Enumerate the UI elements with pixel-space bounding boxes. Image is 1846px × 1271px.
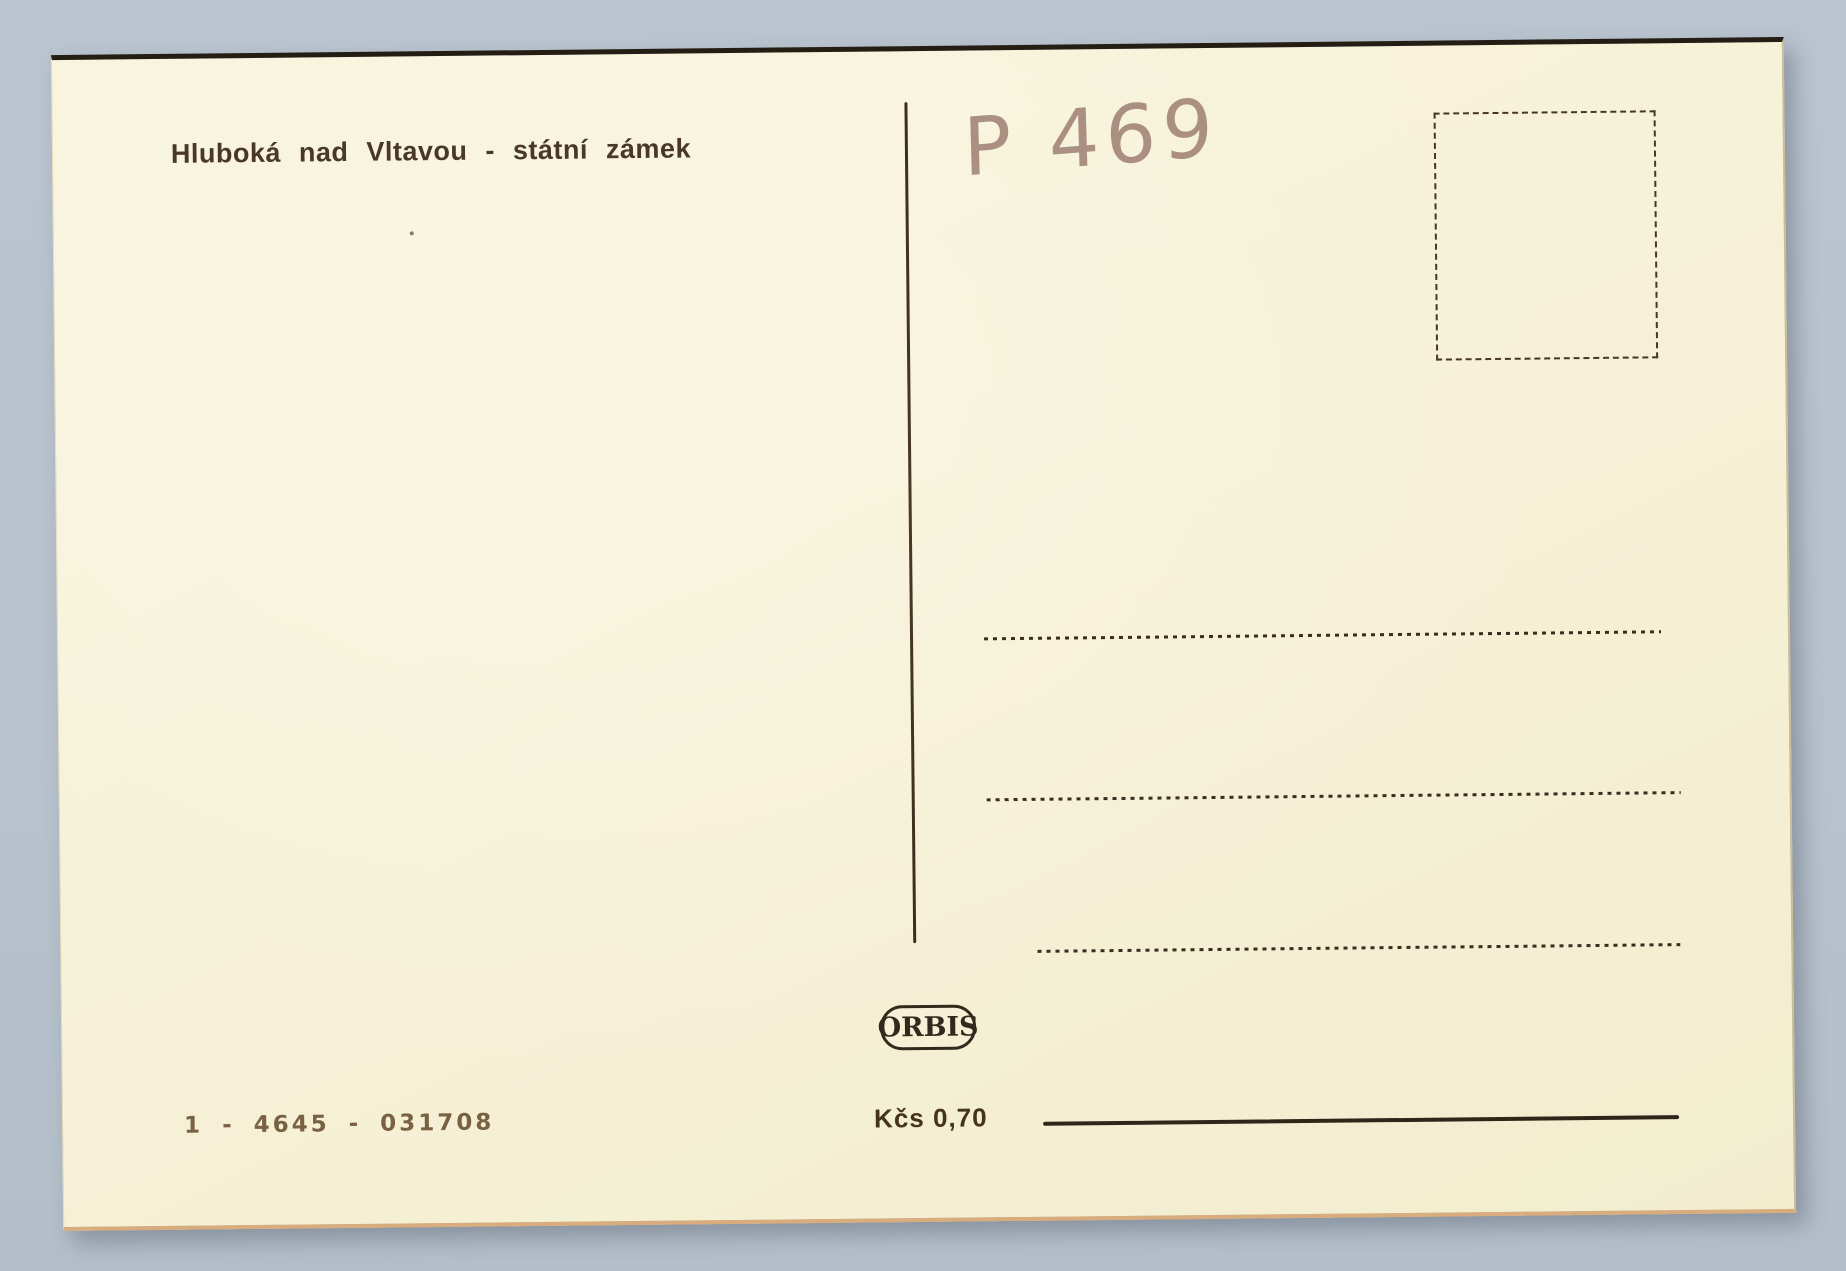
caption-title: Hluboká nad Vltavou - státní zámek xyxy=(171,133,691,169)
address-line-1 xyxy=(984,630,1661,640)
address-line-2 xyxy=(987,791,1681,801)
divider-line xyxy=(904,102,916,943)
catalog-number: 1 - 4645 - 031708 xyxy=(184,1110,494,1139)
paper-speck xyxy=(410,231,414,235)
publisher-logo-text: ORBIS xyxy=(878,1013,979,1041)
price-label: Kčs 0,70 xyxy=(874,1102,988,1134)
stamp-box xyxy=(1434,110,1659,360)
postcard-back: Hluboká nad Vltavou - státní zámek P 469… xyxy=(51,37,1796,1231)
address-line-3 xyxy=(1037,943,1680,953)
publisher-logo: ORBIS xyxy=(880,1004,976,1050)
signature-line xyxy=(1043,1115,1679,1126)
scan-background: Hluboká nad Vltavou - státní zámek P 469… xyxy=(0,0,1846,1271)
handwritten-annotation: P 469 xyxy=(962,81,1220,195)
